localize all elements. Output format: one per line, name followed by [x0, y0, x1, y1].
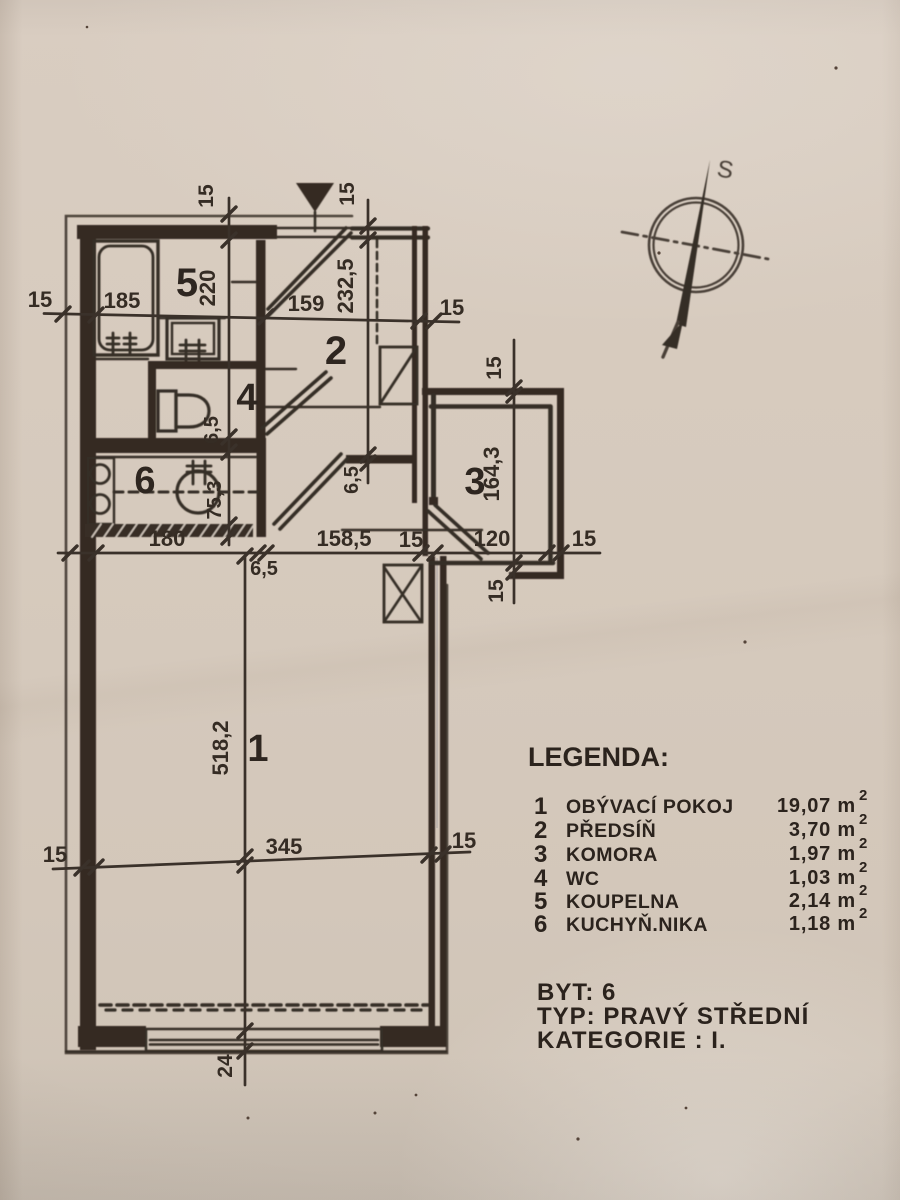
- svg-text:WC: WC: [566, 868, 600, 890]
- svg-text:15: 15: [452, 828, 476, 853]
- svg-text:1: 1: [534, 793, 547, 820]
- svg-text:6: 6: [134, 460, 155, 502]
- svg-text:6,5: 6,5: [341, 466, 363, 494]
- svg-text:LEGENDA:: LEGENDA:: [528, 742, 669, 772]
- svg-text:185: 185: [104, 288, 141, 313]
- svg-text:15: 15: [43, 842, 67, 867]
- svg-text:1,03 m: 1,03 m: [789, 867, 856, 889]
- svg-text:345: 345: [266, 834, 303, 859]
- svg-text:6,5: 6,5: [201, 416, 223, 444]
- svg-text:75,3: 75,3: [204, 481, 226, 520]
- svg-text:1: 1: [247, 728, 268, 770]
- svg-text:15: 15: [399, 527, 423, 552]
- svg-text:2: 2: [859, 835, 867, 852]
- svg-text:15: 15: [485, 579, 508, 603]
- svg-text:BYT: 6: BYT: 6: [537, 979, 616, 1006]
- svg-text:2,14 m: 2,14 m: [789, 890, 856, 912]
- svg-text:PŘEDSÍŇ: PŘEDSÍŇ: [566, 818, 656, 842]
- svg-text:2: 2: [859, 787, 867, 804]
- svg-text:KOUPELNA: KOUPELNA: [566, 891, 679, 913]
- svg-text:232,5: 232,5: [333, 258, 358, 313]
- svg-text:S: S: [715, 155, 735, 184]
- svg-text:4: 4: [236, 377, 257, 419]
- svg-text:1,97 m: 1,97 m: [789, 843, 856, 865]
- svg-text:120: 120: [474, 526, 511, 551]
- svg-text:2: 2: [859, 811, 867, 828]
- svg-text:2: 2: [859, 859, 867, 876]
- svg-text:2: 2: [859, 882, 867, 899]
- svg-text:518,2: 518,2: [208, 720, 233, 775]
- svg-text:KATEGORIE : I.: KATEGORIE : I.: [537, 1027, 727, 1054]
- svg-text:1,18 m: 1,18 m: [789, 913, 856, 935]
- svg-text:KOMORA: KOMORA: [566, 844, 658, 866]
- svg-text:180: 180: [149, 526, 186, 551]
- svg-text:15: 15: [572, 526, 596, 551]
- svg-text:2: 2: [534, 817, 547, 844]
- svg-text:15: 15: [336, 182, 359, 206]
- svg-text:19,07 m: 19,07 m: [777, 795, 856, 817]
- svg-text:15: 15: [28, 287, 52, 312]
- svg-text:164,3: 164,3: [479, 446, 504, 501]
- svg-text:159: 159: [288, 291, 325, 316]
- svg-text:KUCHYŇ.NIKA: KUCHYŇ.NIKA: [566, 912, 708, 936]
- svg-text:15: 15: [195, 184, 218, 208]
- svg-text:15: 15: [440, 295, 464, 320]
- svg-text:3,70 m: 3,70 m: [789, 819, 856, 841]
- svg-text:3: 3: [534, 841, 547, 868]
- svg-text:24: 24: [214, 1054, 237, 1078]
- svg-text:220: 220: [195, 270, 220, 307]
- svg-text:15: 15: [483, 356, 506, 380]
- svg-text:158,5: 158,5: [316, 526, 371, 551]
- svg-text:6,5: 6,5: [250, 558, 278, 580]
- svg-text:2: 2: [859, 905, 867, 922]
- svg-text:OBÝVACÍ POKOJ: OBÝVACÍ POKOJ: [566, 794, 734, 818]
- svg-text:6: 6: [534, 911, 547, 938]
- svg-text:TYP: PRAVÝ STŘEDNÍ: TYP: PRAVÝ STŘEDNÍ: [537, 1002, 810, 1030]
- svg-text:2: 2: [325, 329, 347, 373]
